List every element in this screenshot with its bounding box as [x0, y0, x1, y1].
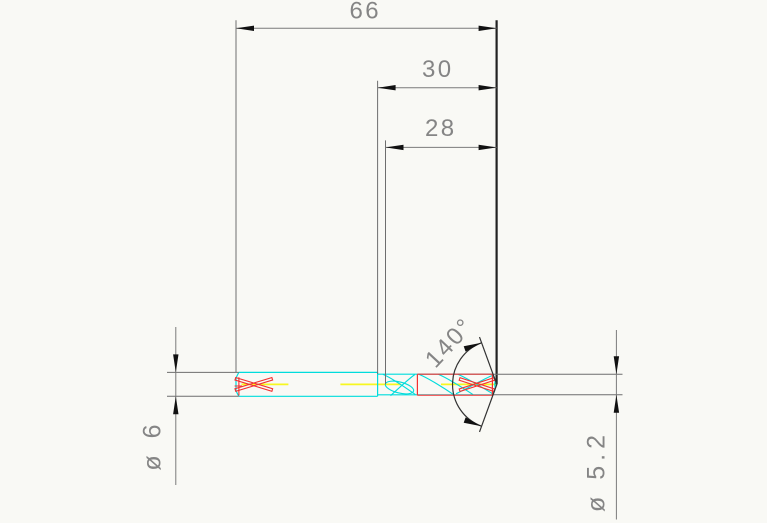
svg-text:28: 28: [425, 115, 457, 142]
svg-text:ø 6: ø 6: [139, 419, 167, 470]
svg-text:ø 5.2: ø 5.2: [583, 430, 611, 512]
svg-text:66: 66: [349, 0, 381, 25]
svg-text:30: 30: [422, 56, 454, 83]
